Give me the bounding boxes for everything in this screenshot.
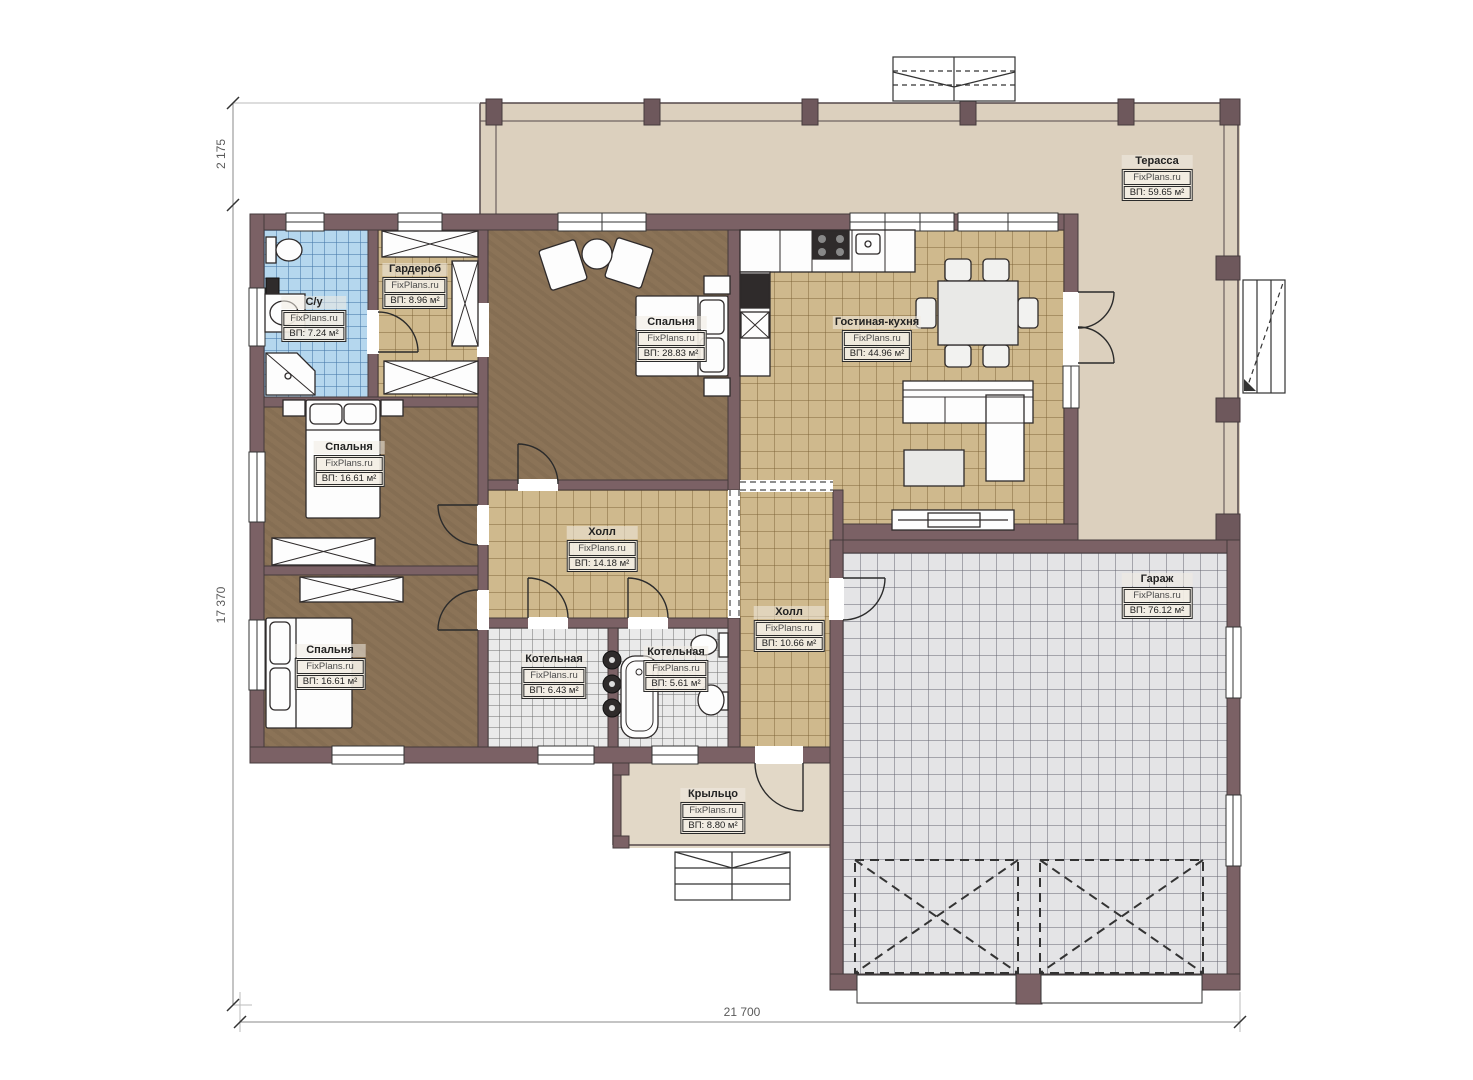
room-name: Гараж [1122, 573, 1193, 586]
room-area: ВП: 16.61 м² [297, 675, 364, 689]
dashed-openings [730, 482, 833, 618]
room-area: ВП: 7.24 м² [283, 327, 344, 341]
room-area: ВП: 14.18 м² [569, 557, 636, 571]
stove-icon [813, 231, 849, 259]
room-name: С/у [281, 296, 346, 309]
dimension-top-offset: 2 175 [214, 139, 228, 169]
room-name: Гостиная-кухня [833, 316, 921, 329]
room-label-wardrobe: Гардероб FixPlans.ru ВП: 8.96 м² [382, 263, 447, 309]
room-label-su: С/у FixPlans.ru ВП: 7.24 м² [281, 296, 346, 342]
room-name: Спальня [636, 316, 707, 329]
toilet-icon [266, 237, 302, 263]
shower-icon [266, 353, 315, 395]
room-name: Крыльцо [680, 788, 745, 801]
dimension-left-total: 17 370 [214, 587, 228, 624]
wardrobe-cabinet-icon [382, 231, 478, 394]
stairs-icon [1243, 280, 1285, 393]
brand-watermark: FixPlans.ru [844, 332, 911, 346]
brand-watermark: FixPlans.ru [297, 660, 364, 674]
dimension-bottom-total: 21 700 [724, 1005, 761, 1019]
room-area: ВП: 28.83 м² [638, 347, 705, 361]
room-area: ВП: 10.66 м² [756, 637, 823, 651]
brand-watermark: FixPlans.ru [645, 662, 706, 676]
fridge-icon [741, 274, 769, 308]
room-name: Терасса [1122, 155, 1193, 168]
garage-gate-icon [855, 860, 1203, 973]
room-label-boiler-1: Котельная FixPlans.ru ВП: 6.43 м² [521, 653, 586, 699]
room-name: Холл [754, 606, 825, 619]
brand-watermark: FixPlans.ru [316, 457, 383, 471]
room-label-living-kitchen: Гостиная-кухня FixPlans.ru ВП: 44.96 м² [833, 316, 921, 362]
room-label-terrace: Терасса FixPlans.ru ВП: 59.65 м² [1122, 155, 1193, 201]
armchair-icon [538, 237, 653, 291]
porch-steps-icon [675, 852, 790, 900]
brand-watermark: FixPlans.ru [682, 804, 743, 818]
brand-watermark: FixPlans.ru [1124, 171, 1191, 185]
room-area: ВП: 59.65 м² [1124, 186, 1191, 200]
room-name: Холл [567, 526, 638, 539]
room-label-bedroom-master: Спальня FixPlans.ru ВП: 28.83 м² [636, 316, 707, 362]
brand-watermark: FixPlans.ru [384, 279, 445, 293]
brand-watermark: FixPlans.ru [523, 669, 584, 683]
dining-table-icon [916, 259, 1038, 367]
room-area: ВП: 8.96 м² [384, 294, 445, 308]
room-label-hall-2: Холл FixPlans.ru ВП: 10.66 м² [754, 606, 825, 652]
tv-console-icon [892, 510, 1014, 530]
room-area: ВП: 5.61 м² [645, 677, 706, 691]
brand-watermark: FixPlans.ru [1124, 589, 1191, 603]
room-name: Спальня [295, 644, 366, 657]
brand-watermark: FixPlans.ru [756, 622, 823, 636]
brand-watermark: FixPlans.ru [638, 332, 705, 346]
room-label-porch: Крыльцо FixPlans.ru ВП: 8.80 м² [680, 788, 745, 834]
room-name: Гардероб [382, 263, 447, 276]
room-label-garage: Гараж FixPlans.ru ВП: 76.12 м² [1122, 573, 1193, 619]
floor-plan-canvas: Терасса FixPlans.ru ВП: 59.65 м² С/у Fix… [0, 0, 1473, 1080]
room-label-bedroom-3: Спальня FixPlans.ru ВП: 16.61 м² [295, 644, 366, 690]
room-area: ВП: 6.43 м² [523, 684, 584, 698]
room-label-hall-1: Холл FixPlans.ru ВП: 14.18 м² [567, 526, 638, 572]
brand-watermark: FixPlans.ru [569, 542, 636, 556]
room-name: Котельная [643, 646, 708, 659]
coffee-table-icon [904, 450, 964, 486]
brand-watermark: FixPlans.ru [283, 312, 344, 326]
room-name: Спальня [314, 441, 385, 454]
room-area: ВП: 8.80 м² [682, 819, 743, 833]
boiler-icon [603, 651, 621, 717]
room-label-bedroom-2: Спальня FixPlans.ru ВП: 16.61 м² [314, 441, 385, 487]
room-area: ВП: 44.96 м² [844, 347, 911, 361]
room-area: ВП: 16.61 м² [316, 472, 383, 486]
room-name: Котельная [521, 653, 586, 666]
stairs-icon [893, 57, 1015, 101]
room-label-boiler-2: Котельная FixPlans.ru ВП: 5.61 м² [643, 646, 708, 692]
room-area: ВП: 76.12 м² [1124, 604, 1191, 618]
